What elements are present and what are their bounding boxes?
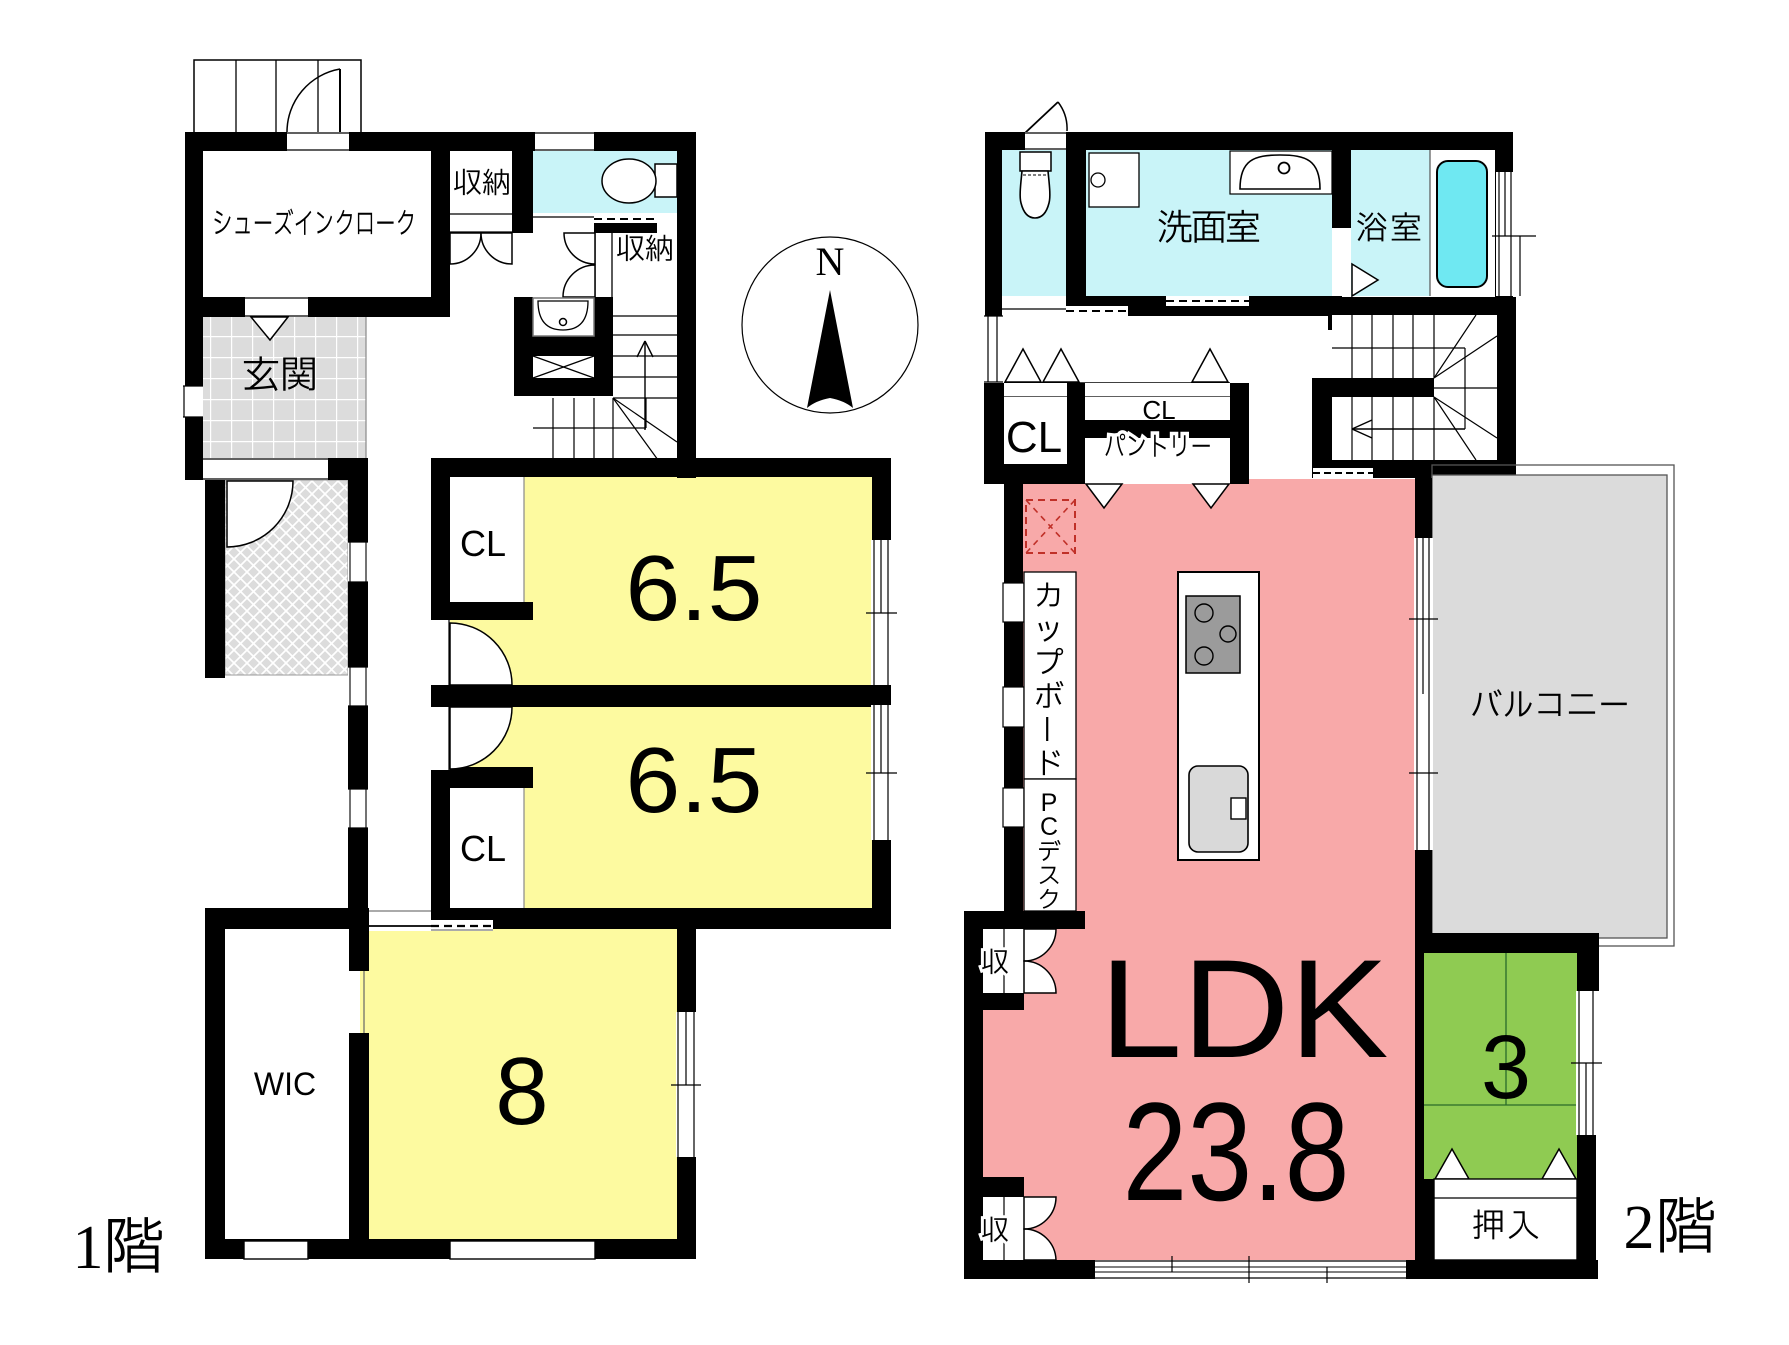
svg-text:8: 8 bbox=[495, 1038, 548, 1145]
svg-text:WIC: WIC bbox=[254, 1066, 316, 1102]
svg-text:LDK: LDK bbox=[1100, 930, 1389, 1087]
svg-text:23.8: 23.8 bbox=[1123, 1073, 1350, 1230]
svg-text:6.5: 6.5 bbox=[626, 728, 763, 832]
svg-text:C: C bbox=[1040, 813, 1058, 841]
svg-text:CL: CL bbox=[1142, 395, 1175, 425]
svg-text:CL: CL bbox=[460, 828, 506, 869]
svg-text:N: N bbox=[816, 239, 845, 284]
svg-text:3: 3 bbox=[1481, 1018, 1531, 1118]
svg-text:2: 2 bbox=[1624, 1194, 1655, 1262]
svg-text:1: 1 bbox=[73, 1214, 104, 1282]
svg-text:CL: CL bbox=[1006, 413, 1062, 462]
svg-text:CL: CL bbox=[460, 523, 506, 564]
svg-text:6.5: 6.5 bbox=[626, 536, 763, 640]
